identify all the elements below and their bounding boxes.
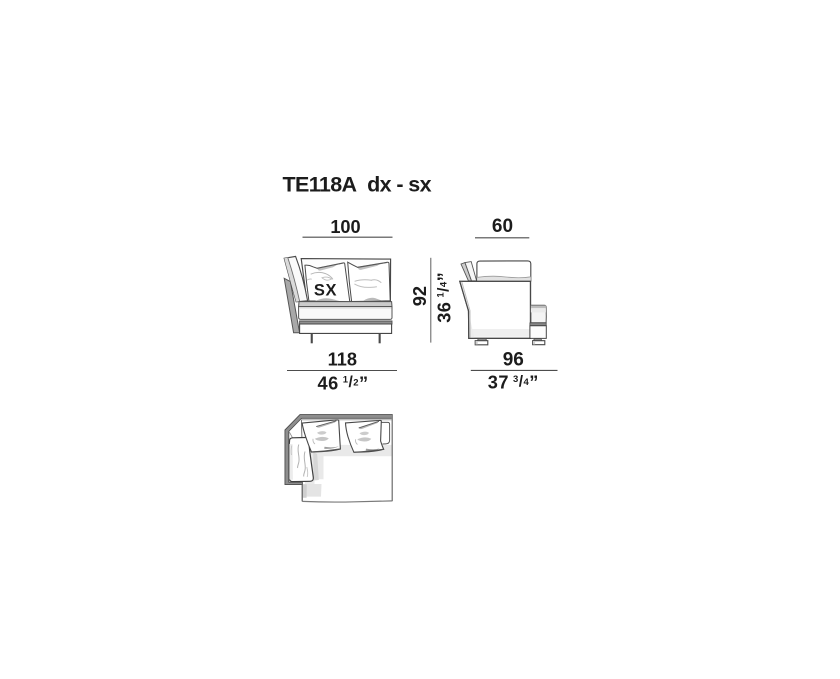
svg-text:100: 100 xyxy=(330,217,360,237)
svg-text:60: 60 xyxy=(492,216,513,237)
svg-text:TE118A dx - sx: TE118A dx - sx xyxy=(283,173,432,197)
svg-text:92: 92 xyxy=(410,286,430,306)
svg-text:96: 96 xyxy=(503,350,524,371)
svg-text:118: 118 xyxy=(328,350,357,370)
svg-text:SX: SX xyxy=(314,281,337,299)
